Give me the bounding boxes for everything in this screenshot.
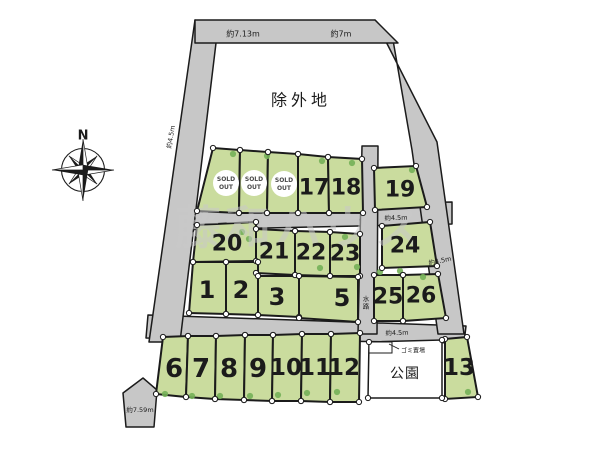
compass-north-label: N (78, 129, 89, 144)
corner-dot (213, 333, 218, 338)
corner-dot (356, 399, 361, 404)
corner-dot (265, 149, 270, 154)
corner-dot (327, 229, 332, 234)
corner-dot (379, 223, 384, 228)
tree-dot (334, 389, 340, 395)
sold-out-text: SOLD (217, 176, 235, 183)
tree-dot (230, 151, 236, 157)
corner-dot (253, 226, 258, 231)
measurement-label: 約7m (331, 29, 352, 39)
corner-dot (327, 273, 332, 278)
plot-number-21: 21 (259, 240, 290, 265)
sold-out-badge: SOLDOUT (271, 171, 297, 197)
corner-dot (475, 394, 480, 399)
corner-dot (223, 311, 228, 316)
corner-dot (366, 339, 371, 344)
measurement-label: 約7.13m (226, 29, 260, 39)
plot-number-12: 12 (328, 355, 360, 381)
measurement-label: 約7.59m (126, 405, 153, 414)
plot-number-9: 9 (249, 354, 267, 384)
corner-dot (327, 399, 332, 404)
plot-number-5: 5 (334, 284, 351, 312)
tree-dot (465, 389, 471, 395)
corner-dot (427, 219, 432, 224)
corner-dot (298, 398, 303, 403)
plot-number-17: 17 (299, 176, 330, 201)
corner-dot (326, 210, 331, 215)
plot-number-22: 22 (296, 241, 327, 266)
plot-number-3: 3 (269, 283, 286, 311)
tree-dot (162, 391, 168, 397)
plot-number-7: 7 (192, 354, 210, 384)
lot-map-page: 藤和ハウスSOLDOUTSOLDOUTSOLDOUT17181920212223… (0, 0, 600, 450)
corner-dot (357, 330, 362, 335)
corner-dot (439, 395, 444, 400)
corner-dot (379, 265, 384, 270)
sold-out-text: OUT (247, 184, 262, 191)
corner-dot (371, 165, 376, 170)
plot-number-18: 18 (331, 176, 362, 201)
tree-dot (304, 390, 310, 396)
corner-dot (223, 259, 228, 264)
corner-dot (183, 394, 188, 399)
sold-out-circle (241, 170, 267, 196)
tree-dot (317, 265, 323, 271)
corner-dot (295, 210, 300, 215)
plot-number-2: 2 (233, 276, 250, 304)
plot-number-23: 23 (330, 242, 361, 267)
measurement-label: 約4.5m (385, 328, 408, 338)
corner-dot (296, 315, 301, 320)
corner-dot (325, 154, 330, 159)
corner-dot (264, 210, 269, 215)
corner-dot (439, 337, 444, 342)
corner-dot (372, 207, 377, 212)
sold-out-text: OUT (277, 185, 292, 192)
sold-out-badge: SOLDOUT (241, 170, 267, 196)
corner-dot (371, 318, 376, 323)
tree-dot (420, 274, 426, 280)
corner-dot (357, 231, 362, 236)
park-label: 公園 (390, 366, 420, 382)
corner-dot (185, 333, 190, 338)
excluded-area-label: 除外地 (271, 91, 331, 110)
sold-out-circle (271, 171, 297, 197)
corner-dot (400, 272, 405, 277)
corner-dot (194, 222, 199, 227)
corner-dot (371, 272, 376, 277)
sold-out-text: SOLD (275, 177, 293, 184)
corner-dot (464, 334, 469, 339)
tree-dot (349, 160, 355, 166)
tree-dot (189, 393, 195, 399)
plot-number-8: 8 (220, 354, 238, 384)
plot-number-11: 11 (299, 355, 331, 381)
plot-number-20: 20 (212, 232, 243, 257)
corner-dot (236, 210, 241, 215)
corner-dot (400, 318, 405, 323)
land-plot-map: 藤和ハウスSOLDOUTSOLDOUTSOLDOUT17181920212223… (0, 0, 600, 450)
sold-out-circle (213, 170, 239, 196)
corner-dot (359, 156, 364, 161)
corner-dot (253, 219, 258, 224)
corner-dot (186, 310, 191, 315)
corner-dot (296, 273, 301, 278)
corner-dot (424, 204, 429, 209)
corner-dot (242, 332, 247, 337)
corner-dot (299, 331, 304, 336)
corner-dot (212, 396, 217, 401)
corner-dot (269, 398, 274, 403)
sold-out-text: SOLD (245, 176, 263, 183)
corner-dot (328, 331, 333, 336)
plot-number-1: 1 (199, 276, 216, 304)
measurement-label: 約4.5m (384, 213, 407, 223)
plot-number-13: 13 (443, 355, 475, 381)
sold-out-badge: SOLDOUT (213, 170, 239, 196)
corner-dot (355, 274, 360, 279)
corner-dot (160, 334, 165, 339)
corner-dot (255, 273, 260, 278)
corner-dot (360, 210, 365, 215)
corner-dot (153, 391, 158, 396)
corner-dot (237, 147, 242, 152)
plot-number-10: 10 (270, 355, 302, 381)
garbage-label: ゴミ置場 (401, 347, 425, 355)
corner-dot (435, 271, 440, 276)
corner-dot (270, 332, 275, 337)
corner-dot (295, 151, 300, 156)
corner-dot (443, 315, 448, 320)
corner-dot (190, 259, 195, 264)
corner-dot (241, 397, 246, 402)
corner-dot (365, 395, 370, 400)
corner-dot (413, 163, 418, 168)
tree-dot (275, 392, 281, 398)
corner-dot (355, 319, 360, 324)
waterway-label: 路 (363, 302, 370, 311)
corner-dot (255, 312, 260, 317)
plot-number-25: 25 (373, 285, 404, 310)
tree-dot (319, 158, 325, 164)
tree-dot (247, 393, 253, 399)
plot-number-26: 26 (406, 284, 437, 309)
corner-dot (210, 145, 215, 150)
plot-number-24: 24 (390, 234, 421, 259)
plot-number-6: 6 (165, 354, 183, 384)
sold-out-text: OUT (219, 184, 234, 191)
corner-dot (194, 208, 199, 213)
corner-dot (292, 228, 297, 233)
garbage-spot-box (369, 342, 392, 353)
plot-number-19: 19 (385, 178, 416, 203)
